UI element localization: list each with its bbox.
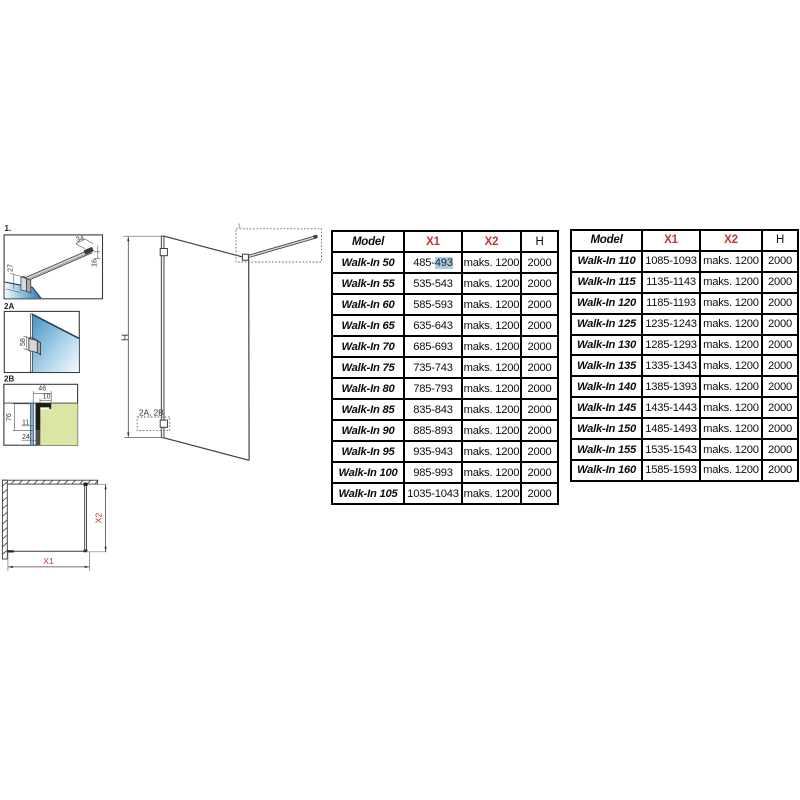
svg-text:16: 16 bbox=[90, 259, 99, 267]
svg-text:H: H bbox=[121, 334, 132, 341]
svg-text:1.: 1. bbox=[5, 224, 12, 233]
svg-text:2A, 2B: 2A, 2B bbox=[139, 409, 164, 418]
svg-text:1.: 1. bbox=[238, 224, 243, 230]
svg-text:X1: X1 bbox=[43, 556, 54, 566]
svg-text:10: 10 bbox=[43, 393, 51, 400]
svg-text:24: 24 bbox=[22, 434, 30, 441]
svg-text:46: 46 bbox=[38, 386, 46, 393]
svg-text:76: 76 bbox=[6, 413, 13, 421]
svg-text:2B: 2B bbox=[4, 375, 14, 384]
svg-text:X2: X2 bbox=[94, 513, 104, 524]
svg-text:2A: 2A bbox=[4, 302, 14, 311]
svg-text:27: 27 bbox=[5, 264, 14, 272]
